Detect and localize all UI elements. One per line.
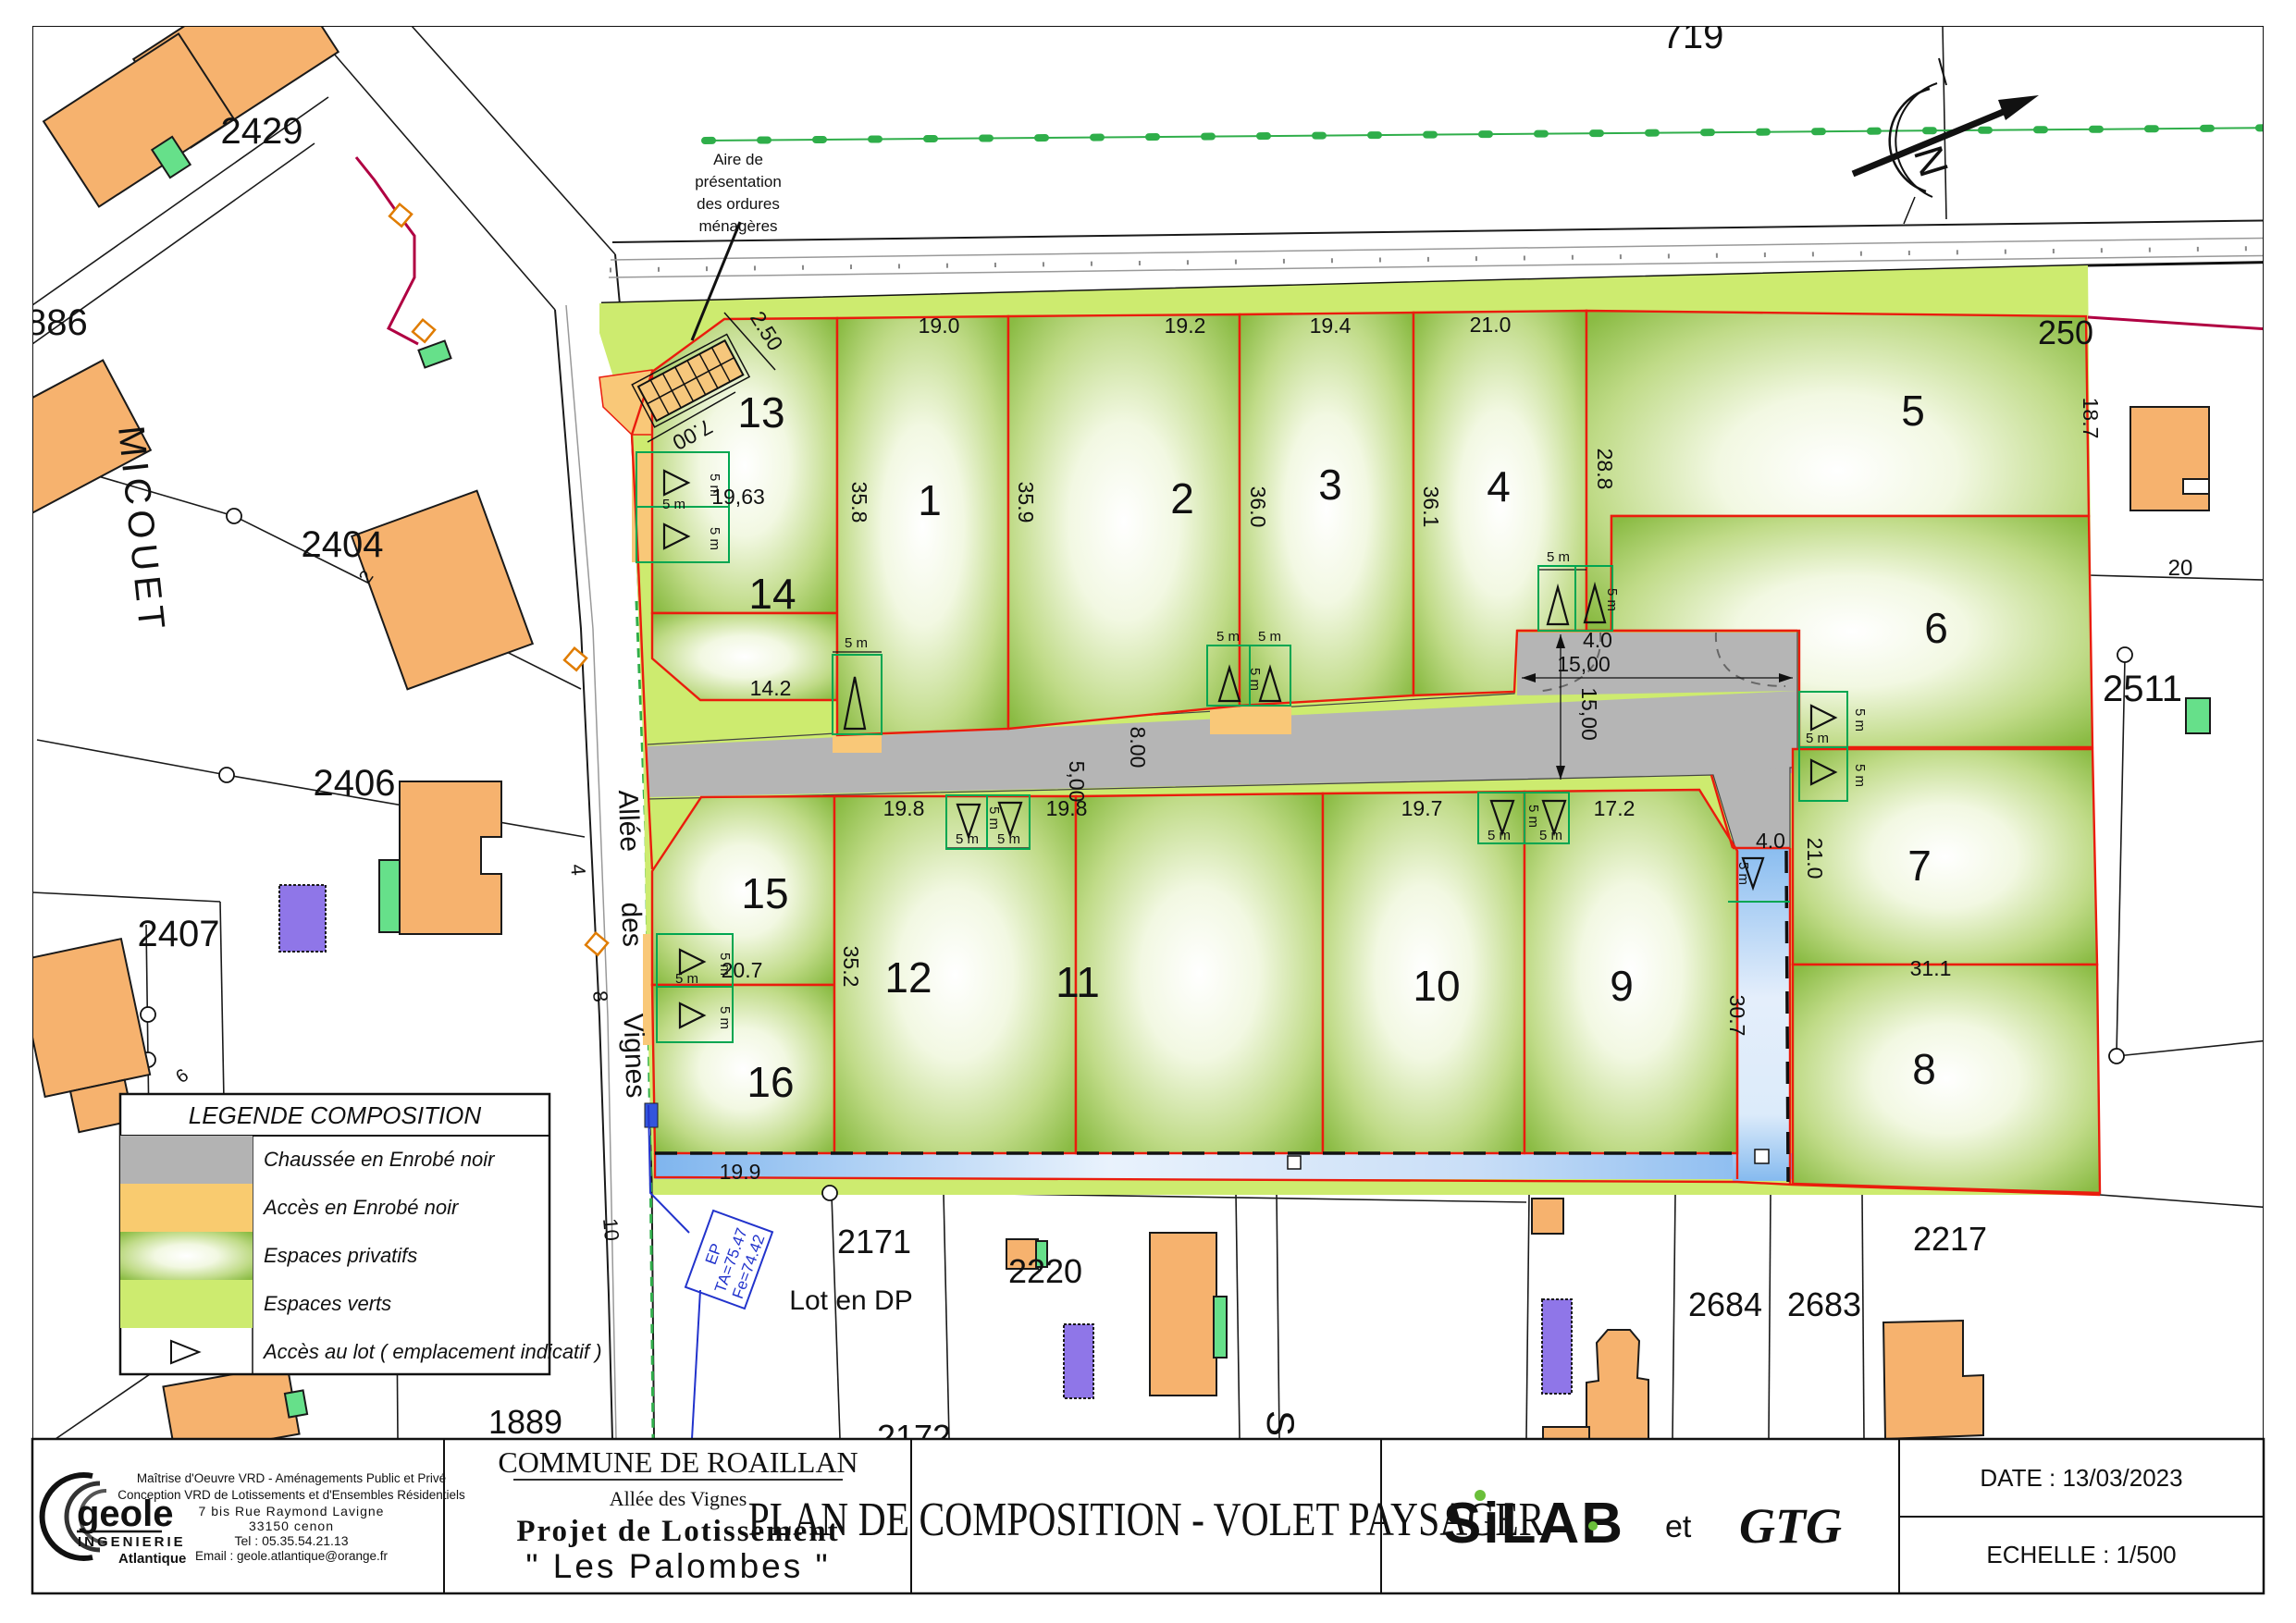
parcel-2429: 2429 <box>221 111 303 152</box>
dim-35-9: 35.9 <box>1014 482 1038 523</box>
parcel-2220: 2220 <box>1008 1252 1082 1290</box>
five-m: 5 m <box>1216 629 1240 645</box>
dim-18-7: 18.7 <box>2079 398 2103 439</box>
legend: LEGENDE COMPOSITION Chaussée en Enrobé n… <box>120 1094 602 1374</box>
five-m: 5 m <box>1258 629 1281 645</box>
silab-dot2-icon <box>1588 1521 1598 1531</box>
dim-19-8-a: 19.8 <box>883 796 925 820</box>
legend-item-acces: Accès en Enrobé noir <box>262 1196 460 1219</box>
housenum-10: 10 <box>599 1217 623 1242</box>
lot-8-shape <box>1793 965 2100 1193</box>
lot-4-number: 4 <box>1487 462 1511 510</box>
dim-19-2: 19.2 <box>1165 314 1206 338</box>
five-m: 5 m <box>675 971 698 987</box>
dim-21-0-b: 21.0 <box>1803 838 1827 879</box>
five-m: 5 m <box>1487 828 1511 843</box>
lot-13-shape <box>652 318 837 613</box>
silab-logo: SiLAB <box>1443 1492 1624 1555</box>
bins-note-3: des ordures <box>697 195 780 213</box>
lot-2-number: 2 <box>1170 474 1194 523</box>
dim-31-1: 31.1 <box>1910 956 1952 980</box>
commune-title: COMMUNE DE ROAILLAN <box>498 1445 858 1479</box>
five-m: 5 m <box>1604 588 1620 611</box>
lot-1-number: 1 <box>918 476 942 524</box>
noue-bottom <box>655 1153 1793 1179</box>
dim-21-0: 21.0 <box>1470 313 1512 337</box>
parcel-2683: 2683 <box>1787 1285 1861 1323</box>
bins-note-1: Aire de <box>713 151 763 168</box>
dim-19-8-b: 19.8 <box>1046 796 1088 820</box>
five-m: 5 m <box>986 806 1002 830</box>
five-m: 5 m <box>845 635 868 651</box>
five-m: 5 m <box>1525 805 1541 828</box>
firm-line-3: 7 bis Rue Raymond Lavigne <box>199 1504 385 1518</box>
parcel-2407: 2407 <box>138 914 220 954</box>
five-m: 5 m <box>1852 764 1868 787</box>
dim-4-0-a: 4.0 <box>1583 628 1612 652</box>
legend-item-acces-lot: Accès au lot ( emplacement indicatif ) <box>262 1340 602 1363</box>
legend-swatch-verts <box>120 1280 253 1328</box>
five-m: 5 m <box>956 831 979 847</box>
lot-8-number: 8 <box>1912 1045 1936 1093</box>
silab-dot-icon <box>1475 1490 1486 1501</box>
housenum-6: 6 <box>172 1065 192 1088</box>
parcel-1889: 1889 <box>488 1403 562 1441</box>
legend-item-verts: Espaces verts <box>264 1292 391 1315</box>
partners-et: et <box>1665 1509 1692 1544</box>
legend-item-privatifs: Espaces privatifs <box>264 1244 417 1267</box>
firm-line-2: Conception VRD de Lotissements et d'Ense… <box>117 1488 465 1502</box>
hedge-line-top <box>705 128 2296 141</box>
lot-9-number: 9 <box>1610 962 1634 1010</box>
lot-11-shape <box>1076 793 1323 1153</box>
dim-30-7: 30.7 <box>1725 995 1749 1037</box>
housenum-4: 4 <box>566 863 590 876</box>
dim-17-2: 17.2 <box>1594 796 1636 820</box>
bins-note-2: présentation <box>695 173 782 191</box>
street-allee-2: des <box>615 902 648 947</box>
firm-line-4: 33150 cenon <box>249 1518 334 1533</box>
gtg-logo: GTG <box>1739 1498 1842 1554</box>
date-label: DATE : 13/03/2023 <box>1980 1464 2182 1492</box>
dim-28-8: 28.8 <box>1593 449 1617 490</box>
dim-19-0: 19.0 <box>919 314 960 338</box>
lot-5-number: 5 <box>1901 387 1925 435</box>
lot-7-number: 7 <box>1907 842 1932 890</box>
five-m: 5 m <box>1852 708 1868 732</box>
dim-15-00-v: 15,00 <box>1577 687 1601 741</box>
five-m: 5 m <box>1547 549 1570 565</box>
five-m: 5 m <box>707 527 722 550</box>
scale-label: ECHELLE : 1/500 <box>1986 1541 2176 1568</box>
lotissement-name: " Les Palombes " <box>525 1547 830 1585</box>
parcel-250: 250 <box>2038 314 2093 351</box>
dim-8-00: 8.00 <box>1126 727 1150 768</box>
firm-line-6: Email : geole.atlantique@orange.fr <box>195 1549 389 1563</box>
lot-2-shape <box>1008 314 1240 729</box>
commune-street: Allée des Vignes <box>610 1487 747 1510</box>
dim-19-9: 19.9 <box>720 1160 761 1184</box>
parcel-2406: 2406 <box>314 763 396 804</box>
geole-subname: INGENIERIE <box>78 1534 186 1550</box>
five-m: 5 m <box>1806 731 1829 746</box>
parcel-2217: 2217 <box>1913 1220 1987 1258</box>
legend-item-chaussee: Chaussée en Enrobé noir <box>264 1148 496 1171</box>
legend-title: LEGENDE COMPOSITION <box>189 1101 482 1129</box>
parcel-2511: 2511 <box>2103 669 2182 709</box>
plan-canvas: EP TA=75.47 Fe=74.42 N 719 2429 886 2404… <box>0 0 2296 1623</box>
legend-swatch-chaussee <box>120 1136 253 1184</box>
parcel-719: 719 <box>1662 16 1724 56</box>
lot-12-number: 12 <box>884 953 932 1002</box>
title-block: geole INGENIERIE Atlantique Maîtrise d'O… <box>32 1439 2264 1593</box>
five-m: 5 m <box>717 1006 733 1029</box>
parcel-886: 886 <box>26 302 88 343</box>
dim-19-7: 19.7 <box>1401 796 1443 820</box>
marker-square-1 <box>1288 1156 1301 1169</box>
hydrant-marker <box>645 1103 658 1127</box>
street-s: S <box>1259 1410 1302 1436</box>
lot-15-number: 15 <box>741 869 788 917</box>
dim-36-1: 36.1 <box>1419 486 1443 528</box>
plan-sheet: EP TA=75.47 Fe=74.42 N 719 2429 886 2404… <box>0 0 2296 1623</box>
dim-15-00-h: 15,00 <box>1557 652 1611 676</box>
street-allee-3: Vignes <box>617 1014 650 1099</box>
lot-3-number: 3 <box>1318 461 1342 509</box>
lot-7-shape <box>1793 749 2097 965</box>
dim-36-0: 36.0 <box>1246 486 1270 528</box>
housenum-8: 8 <box>588 990 612 1002</box>
firm-line-1: Maîtrise d'Oeuvre VRD - Aménagements Pub… <box>137 1471 446 1485</box>
lot-13-number: 13 <box>737 388 784 436</box>
dim-14-2: 14.2 <box>750 676 792 700</box>
five-m: 5 m <box>662 497 685 512</box>
parcel-2171: 2171 <box>837 1223 911 1260</box>
bins-note-4: ménagères <box>698 217 777 235</box>
street-micouet: MICOUET <box>110 424 172 636</box>
five-m: 5 m <box>707 473 722 497</box>
lot-14-number: 14 <box>748 570 796 618</box>
dim-20: 20 <box>2168 556 2193 581</box>
lot-en-dp: Lot en DP <box>789 1285 912 1316</box>
dim-35-2: 35.2 <box>839 946 863 988</box>
lot-10-number: 10 <box>1413 962 1460 1010</box>
parcel-2404: 2404 <box>302 524 384 565</box>
geole-region: Atlantique <box>118 1551 186 1567</box>
street-allee-1: Allée <box>612 790 645 853</box>
five-m: 5 m <box>1735 862 1751 885</box>
lot-16-number: 16 <box>747 1058 794 1106</box>
ep-label-box: EP TA=75.47 Fe=74.42 <box>685 1211 772 1309</box>
five-m: 5 m <box>717 953 733 976</box>
legend-swatch-privatifs <box>120 1232 253 1280</box>
dim-19-4: 19.4 <box>1310 314 1352 338</box>
lot-11-number: 11 <box>1055 958 1100 1006</box>
lot-6-number: 6 <box>1924 604 1948 652</box>
five-m: 5 m <box>997 831 1020 847</box>
dim-35-8: 35.8 <box>847 482 871 523</box>
parcel-2684: 2684 <box>1688 1285 1762 1323</box>
five-m: 5 m <box>1539 828 1562 843</box>
lot-1-shape <box>837 316 1008 735</box>
firm-line-5: Tel : 05.35.54.21.13 <box>235 1533 349 1548</box>
marker-square-2 <box>1755 1150 1769 1163</box>
five-m: 5 m <box>1247 668 1263 691</box>
plan-title: PLAN DE COMPOSITION - VOLET PAYSAGER <box>748 1494 1545 1546</box>
legend-swatch-acces <box>120 1184 253 1232</box>
dim-4-0-b: 4.0 <box>1756 829 1785 853</box>
